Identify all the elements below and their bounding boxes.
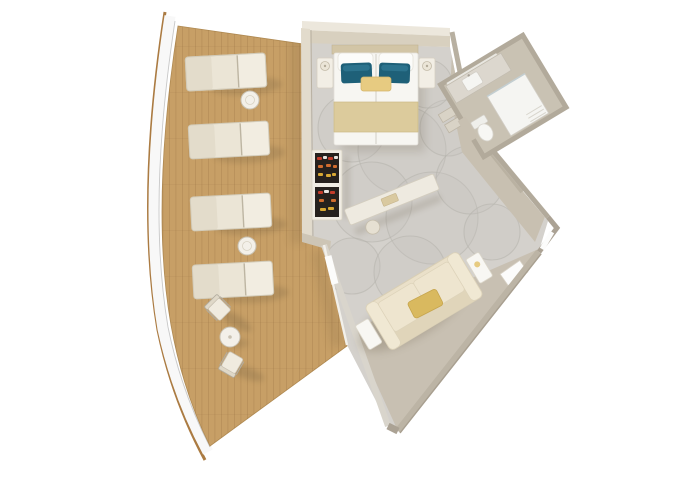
lounger-side-table-2 (238, 237, 256, 255)
sun-lounger-1 (185, 53, 267, 91)
nightstand-right (419, 58, 435, 88)
bed-gold-pillow (361, 77, 391, 91)
sun-lounger-3 (190, 193, 272, 231)
bistro-table (220, 327, 240, 347)
floorplan-canvas (0, 0, 680, 486)
open-wardrobe (312, 150, 350, 220)
lounger-side-table-1 (241, 91, 259, 109)
sun-lounger-2 (188, 121, 270, 159)
sun-lounger-4 (192, 261, 274, 299)
bed-foot-runner (334, 102, 418, 132)
nightstand-left (317, 58, 333, 88)
bed (317, 45, 435, 152)
suite-floorplan-render (0, 0, 680, 486)
